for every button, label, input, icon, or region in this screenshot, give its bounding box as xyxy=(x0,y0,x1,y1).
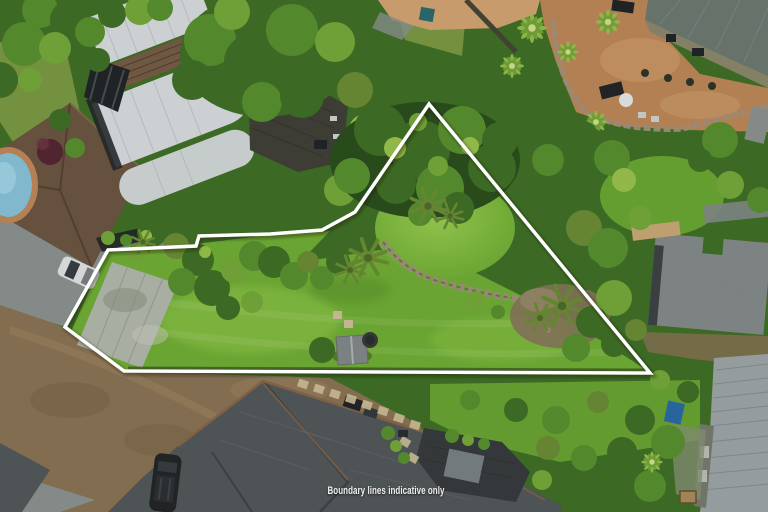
aerial-photo-canvas: Boundary lines indicative only xyxy=(0,0,768,512)
photo-grain xyxy=(0,0,768,512)
aerial-photo: Boundary lines indicative only xyxy=(0,0,768,512)
caption-text: Boundary lines indicative only xyxy=(328,485,446,497)
